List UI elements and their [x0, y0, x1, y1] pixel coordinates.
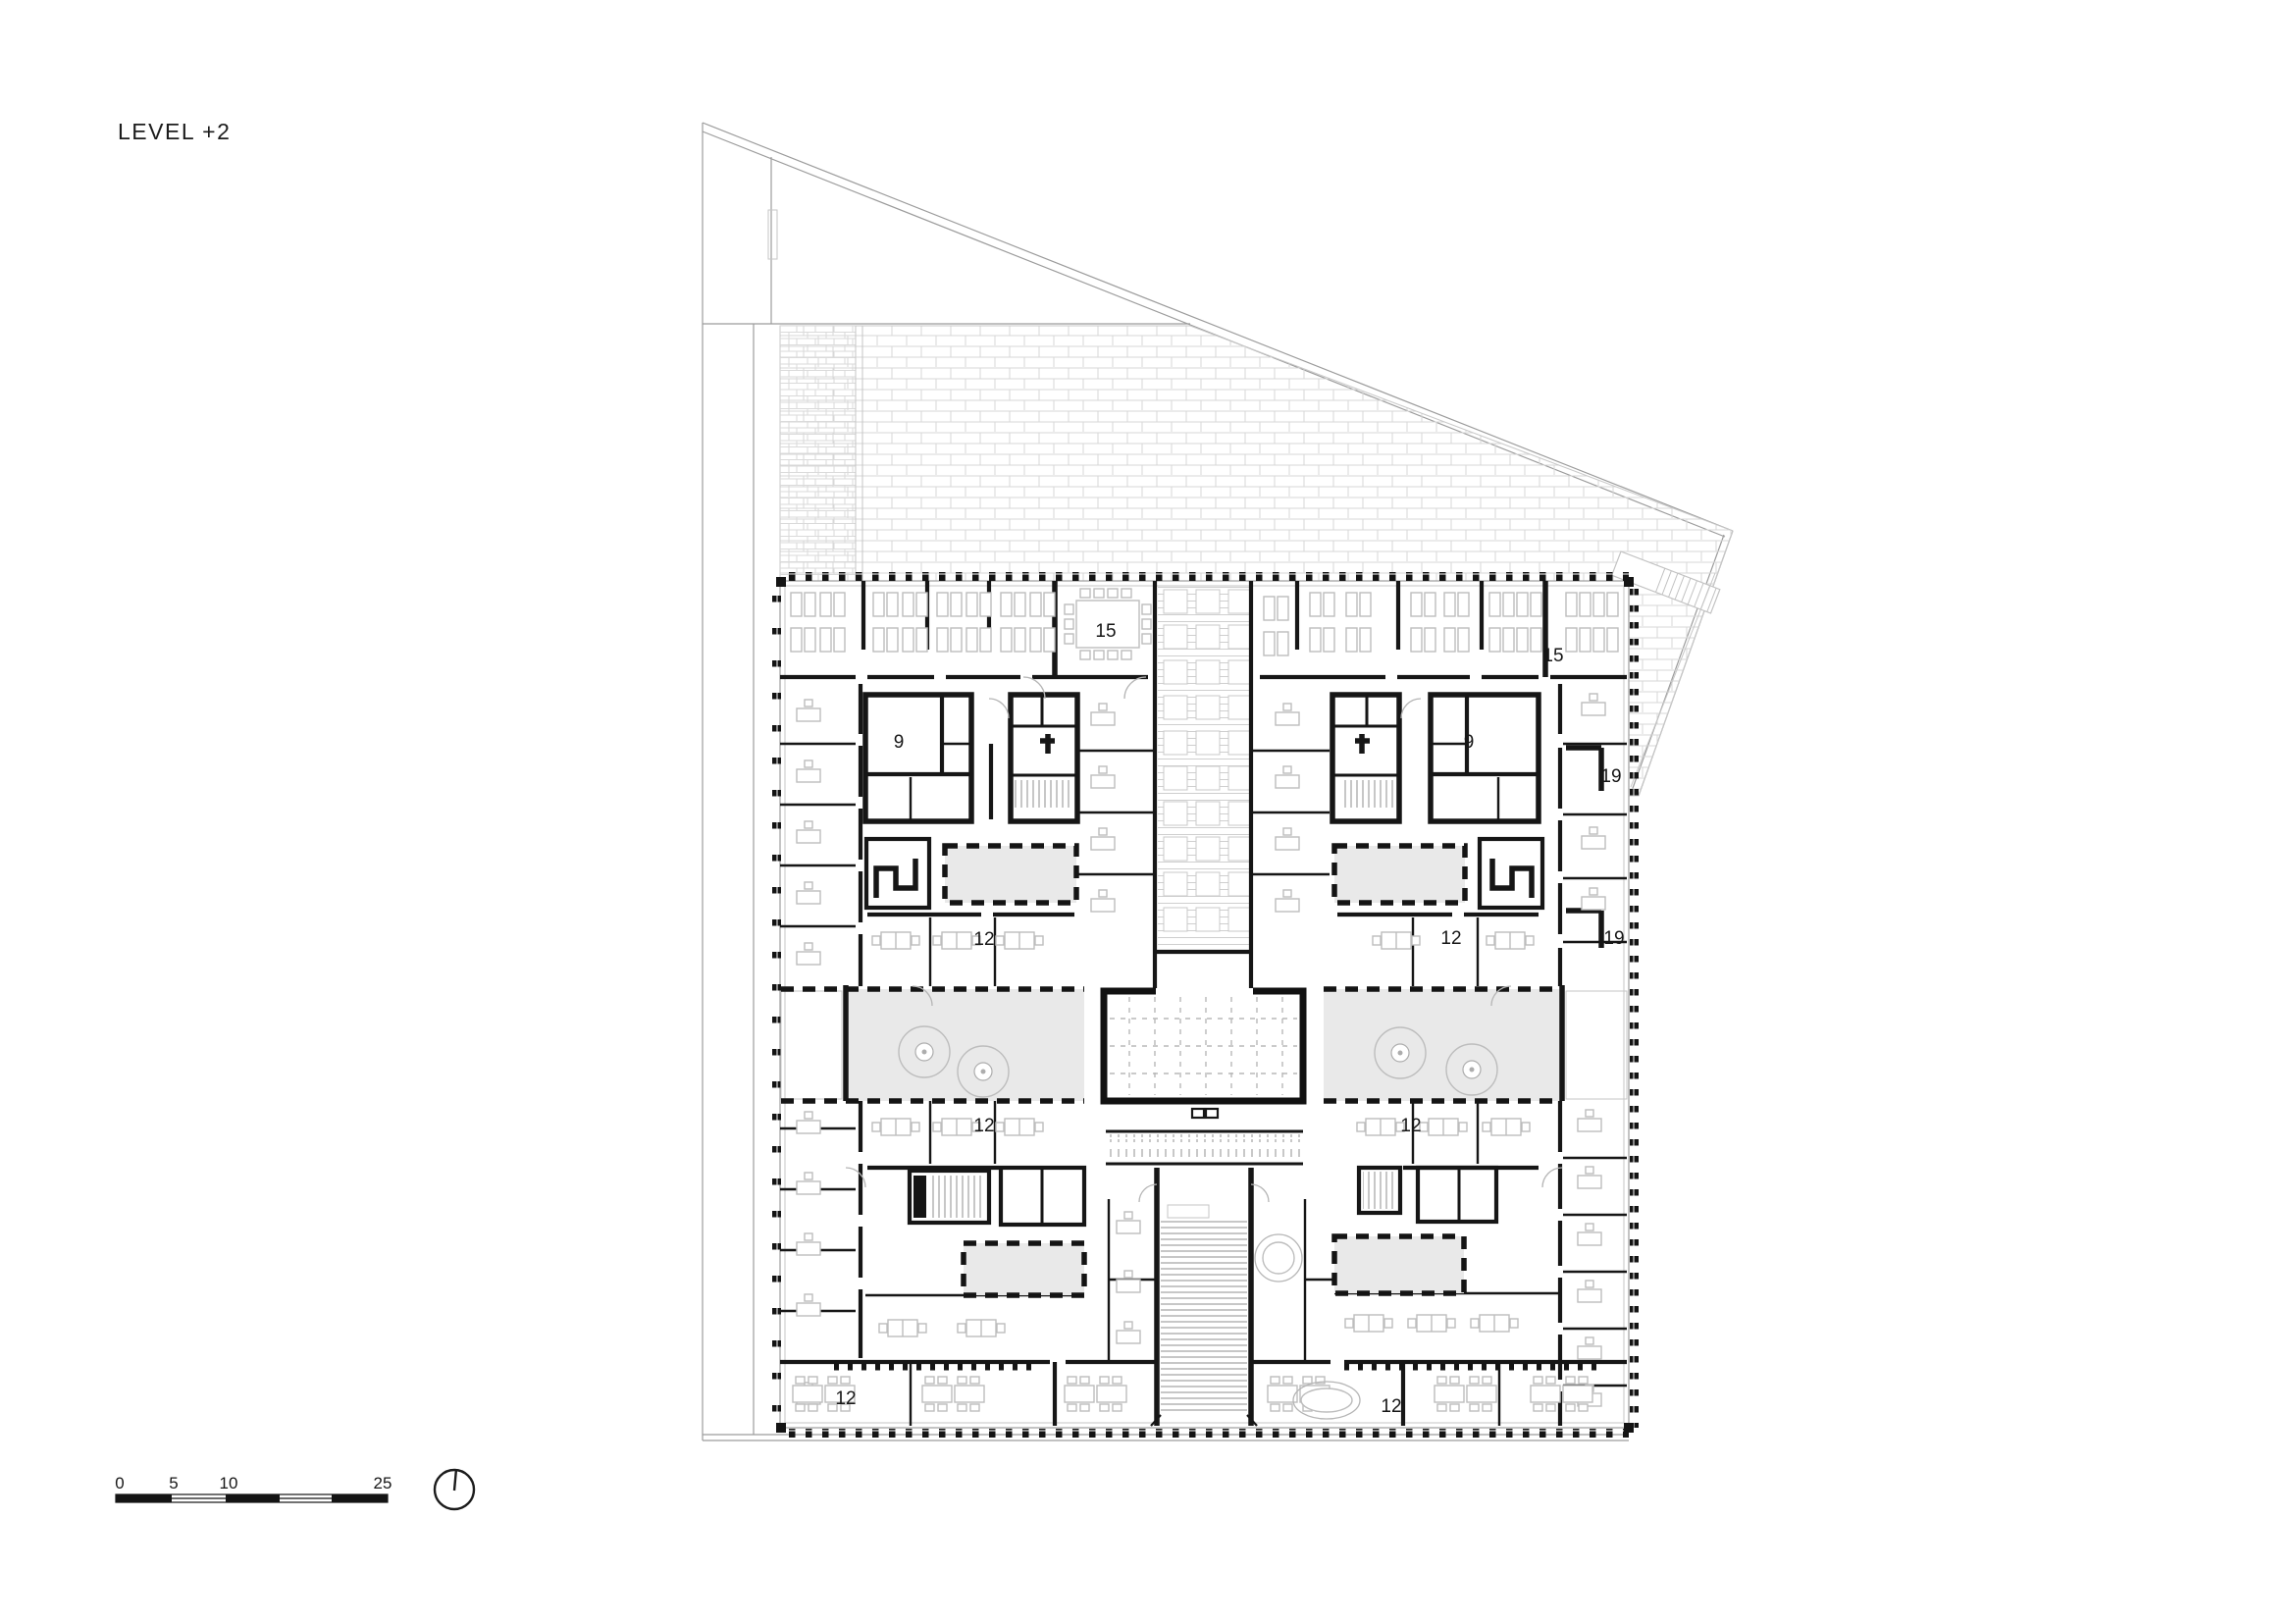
room-9-east	[1431, 695, 1539, 821]
footbridge-treads	[1108, 1134, 1301, 1142]
room-number-label: 15	[1542, 646, 1563, 666]
scale-tick-label: 0	[115, 1474, 124, 1492]
scale-tick-label: 10	[220, 1474, 238, 1492]
room-9-west	[865, 695, 971, 821]
page-title: LEVEL +2	[118, 119, 231, 144]
room-number-label: 9	[894, 732, 905, 753]
service-box	[964, 1243, 1084, 1295]
facade-mullions-bottom	[780, 1429, 1629, 1438]
scale-tick-label: 5	[169, 1474, 178, 1492]
atrium	[1104, 581, 1303, 1164]
facade-mullions-top	[780, 572, 1629, 581]
room-number-label: 12	[1400, 1116, 1421, 1136]
architectural-drawing-sheet: 1515991919121212121212 LEVEL +2 0 5 10 2…	[0, 0, 2296, 1623]
oval-table	[1301, 1388, 1352, 1412]
scale-segment	[332, 1494, 388, 1502]
site-door	[768, 210, 777, 259]
grand-stair-treads	[1161, 1219, 1247, 1413]
room-number-label: 12	[1381, 1396, 1401, 1417]
room-number-label: 9	[1464, 732, 1475, 753]
room-number-label: 12	[835, 1388, 856, 1409]
terrace-paving-hatch	[780, 326, 1733, 796]
scale-segment	[116, 1494, 172, 1502]
service-box	[945, 846, 1076, 903]
elevator	[1206, 1109, 1218, 1118]
roof-terrace	[780, 326, 1733, 796]
scale-tick-label: 25	[374, 1474, 392, 1492]
suite-south-east	[1418, 1168, 1496, 1222]
terrace-west	[848, 989, 1084, 1101]
scale-bar: 0 5 10 25	[115, 1474, 391, 1502]
grand-stair-hall	[1151, 1168, 1257, 1426]
room-number-label: 15	[1095, 621, 1116, 642]
service-box	[1334, 846, 1465, 903]
terrace-fine-paving	[780, 326, 856, 581]
room-number-label: 12	[973, 929, 994, 950]
elevator	[1192, 1109, 1204, 1118]
scale-segment	[226, 1494, 280, 1502]
floor-plan-drawing: 1515991919121212121212 LEVEL +2 0 5 10 2…	[0, 0, 2296, 1623]
room-number-label: 19	[1603, 928, 1624, 949]
service-box	[1334, 1236, 1464, 1293]
room-number-label: 19	[1600, 766, 1621, 787]
room-number-label: 12	[1440, 928, 1461, 949]
footbridge-treads	[1108, 1149, 1301, 1157]
facade-mullions-right	[1630, 581, 1639, 1428]
terrace-east	[1324, 989, 1562, 1101]
title-block: LEVEL +2	[118, 119, 231, 144]
round-table	[1263, 1242, 1294, 1274]
skylight-grid	[1161, 587, 1250, 936]
room-number-label: 12	[973, 1116, 994, 1136]
north-arrow-icon	[435, 1469, 474, 1509]
facade-mullions-left	[772, 581, 781, 1428]
